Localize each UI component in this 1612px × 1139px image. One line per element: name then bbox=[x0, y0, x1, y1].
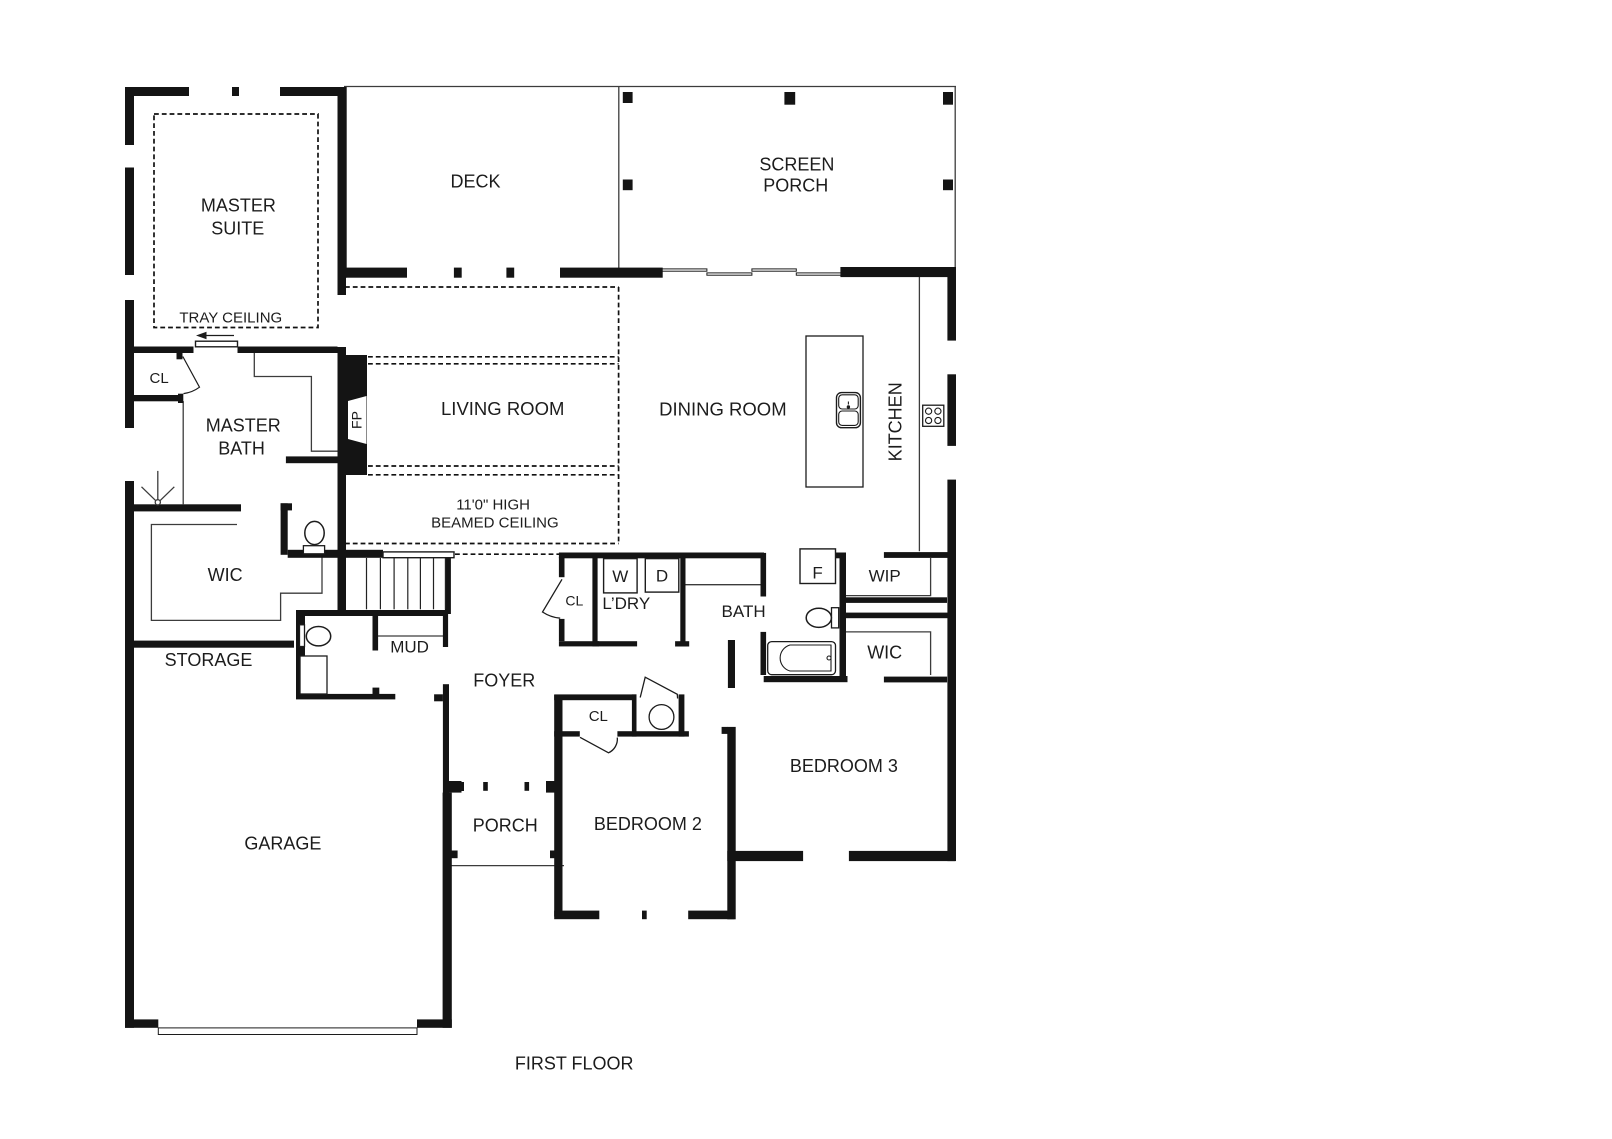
svg-text:CL: CL bbox=[589, 708, 608, 725]
svg-text:SUITE: SUITE bbox=[211, 218, 264, 238]
svg-text:W: W bbox=[612, 567, 628, 586]
svg-text:LIVING ROOM: LIVING ROOM bbox=[441, 398, 564, 419]
svg-text:WIC: WIC bbox=[867, 642, 902, 662]
svg-text:BATH: BATH bbox=[722, 602, 766, 621]
svg-text:BEAMED CEILING: BEAMED CEILING bbox=[431, 514, 559, 531]
svg-text:BEDROOM 3: BEDROOM 3 bbox=[790, 756, 898, 776]
svg-text:11'0" HIGH: 11'0" HIGH bbox=[456, 496, 530, 513]
svg-text:MUD: MUD bbox=[390, 637, 429, 656]
svg-text:F: F bbox=[812, 564, 822, 583]
svg-text:WIP: WIP bbox=[869, 567, 901, 586]
svg-text:CL: CL bbox=[565, 592, 583, 608]
svg-text:PORCH: PORCH bbox=[473, 816, 538, 836]
svg-text:KITCHEN: KITCHEN bbox=[886, 382, 906, 461]
svg-text:BEDROOM 2: BEDROOM 2 bbox=[594, 814, 702, 834]
svg-text:CL: CL bbox=[150, 370, 169, 387]
svg-text:DINING ROOM: DINING ROOM bbox=[659, 399, 786, 420]
svg-text:D: D bbox=[656, 566, 668, 585]
svg-text:GARAGE: GARAGE bbox=[244, 834, 321, 854]
svg-text:TRAY CEILING: TRAY CEILING bbox=[179, 309, 282, 326]
svg-text:MASTER: MASTER bbox=[206, 416, 281, 436]
svg-text:STORAGE: STORAGE bbox=[165, 650, 253, 670]
svg-text:SCREEN: SCREEN bbox=[759, 154, 834, 174]
svg-text:FIRST FLOOR: FIRST FLOOR bbox=[515, 1053, 634, 1073]
svg-text:FOYER: FOYER bbox=[473, 670, 535, 690]
svg-text:DECK: DECK bbox=[450, 171, 500, 191]
svg-text:WIC: WIC bbox=[208, 565, 243, 585]
svg-text:BATH: BATH bbox=[218, 439, 265, 459]
svg-text:L’DRY: L’DRY bbox=[602, 594, 650, 613]
svg-text:FP: FP bbox=[349, 411, 365, 429]
svg-text:PORCH: PORCH bbox=[763, 176, 828, 196]
svg-text:MASTER: MASTER bbox=[201, 196, 276, 216]
